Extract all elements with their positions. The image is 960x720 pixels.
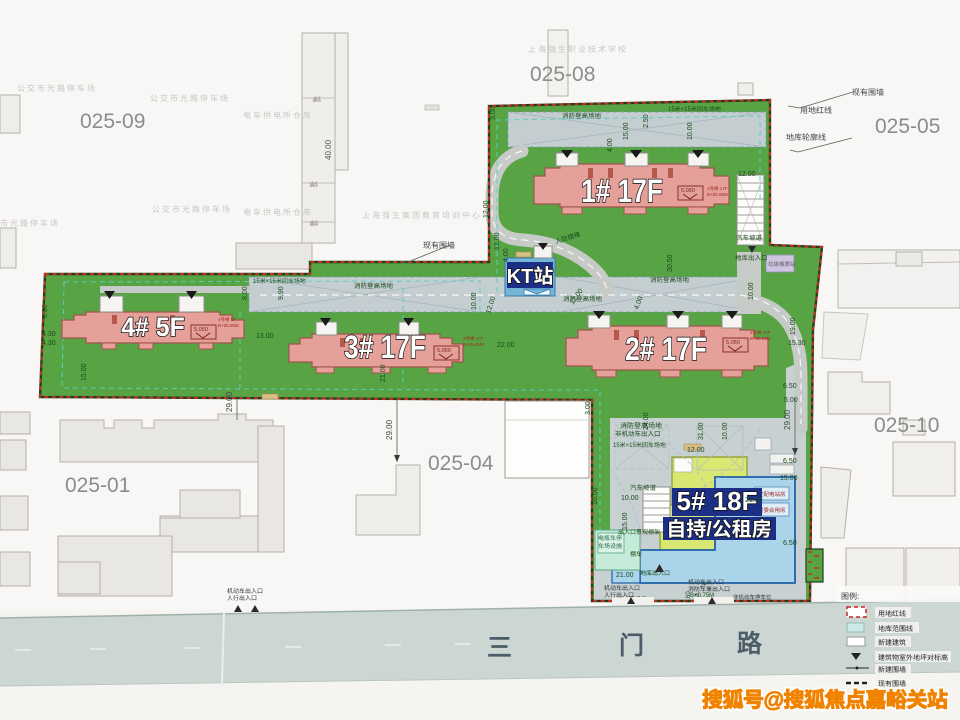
svg-text:4.00: 4.00 [503, 248, 510, 262]
svg-text:消防登高场地: 消防登高场地 [562, 112, 602, 120]
svg-text:21.00: 21.00 [616, 572, 634, 579]
svg-text:10.00: 10.00 [687, 122, 694, 140]
svg-text:2# 17F: 2# 17F [625, 333, 707, 368]
svg-text:2.50: 2.50 [643, 114, 650, 128]
svg-text:15米×15米回车场地: 15米×15米回车场地 [613, 441, 666, 449]
svg-text:电车供电所仓库: 电车供电所仓库 [243, 111, 313, 120]
svg-text:出入口景观棚架: 出入口景观棚架 [618, 528, 660, 536]
svg-text:现有围墙: 现有围墙 [878, 680, 906, 688]
svg-text:4号楼 5F: 4号楼 5F [218, 317, 236, 322]
svg-text:6.50: 6.50 [783, 540, 797, 547]
svg-text:地库轮廓线: 地库轮廓线 [786, 133, 826, 142]
svg-text:31.00: 31.00 [698, 422, 705, 440]
svg-text:KT站: KT站 [507, 266, 554, 288]
svg-text:025-10: 025-10 [874, 414, 939, 437]
svg-text:用地红线: 用地红线 [800, 106, 832, 115]
svg-text:消防车兼出入口: 消防车兼出入口 [688, 585, 730, 593]
svg-text:垃圾楼质站: 垃圾楼质站 [768, 261, 796, 268]
svg-text:10.00: 10.00 [621, 495, 639, 502]
svg-text:12.00: 12.00 [483, 200, 490, 218]
svg-text:15.00: 15.00 [623, 122, 630, 140]
svg-text:棚车: 棚车 [630, 550, 642, 558]
svg-text:9.90: 9.90 [278, 286, 285, 300]
svg-text:倉1: 倉1 [310, 181, 318, 188]
svg-text:1# 17F: 1# 17F [581, 175, 663, 210]
svg-text:2号楼 17F: 2号楼 17F [750, 330, 771, 335]
svg-text:15米×15米回车场地: 15米×15米回车场地 [668, 105, 721, 113]
svg-text:10.00: 10.00 [722, 422, 729, 440]
svg-text:居委会用房: 居委会用房 [758, 507, 786, 514]
svg-text:30.50: 30.50 [667, 254, 674, 272]
svg-text:3号楼 17F: 3号楼 17F [463, 336, 484, 341]
svg-text:倉1: 倉1 [313, 96, 321, 103]
svg-text:025-05: 025-05 [875, 115, 940, 138]
svg-text:5.050: 5.050 [194, 327, 208, 333]
svg-text:10.00: 10.00 [471, 292, 478, 310]
svg-text:29.00: 29.00 [385, 419, 394, 440]
svg-text:三: 三 [487, 634, 512, 662]
svg-text:汽车坡道: 汽车坡道 [630, 484, 657, 492]
svg-text:地库出入口: 地库出入口 [735, 254, 768, 262]
svg-text:22.00: 22.00 [497, 342, 515, 349]
svg-text:12.00: 12.00 [687, 447, 705, 454]
svg-text:15米×15米回车场地: 15米×15米回车场地 [253, 277, 306, 285]
svg-text:人行出入口: 人行出入口 [604, 591, 634, 599]
svg-text:4.30: 4.30 [42, 331, 56, 338]
svg-text:用地红线: 用地红线 [878, 610, 906, 618]
svg-text:市光路停车场: 市光路停车场 [0, 219, 60, 228]
svg-text:025-04: 025-04 [428, 452, 494, 475]
svg-text:5.050: 5.050 [726, 340, 740, 346]
svg-text:5.050: 5.050 [681, 188, 695, 194]
svg-text:15.30: 15.30 [788, 340, 806, 347]
svg-text:地库出入口: 地库出入口 [640, 569, 670, 577]
svg-text:40.00: 40.00 [324, 139, 333, 160]
svg-text:门: 门 [619, 632, 644, 660]
svg-text:8.20: 8.20 [42, 304, 49, 318]
svg-text:4# 5F: 4# 5F [121, 313, 185, 342]
svg-text:10.00: 10.00 [748, 282, 755, 300]
svg-text:1号楼 17F: 1号楼 17F [707, 186, 728, 191]
svg-text:19.00: 19.00 [790, 317, 797, 335]
svg-text:15.00: 15.00 [81, 363, 88, 381]
svg-text:消防登高场地: 消防登高场地 [354, 282, 394, 290]
svg-text:机动车出入口: 机动车出入口 [604, 584, 640, 592]
svg-text:29.00: 29.00 [225, 391, 234, 412]
svg-text:21.00: 21.00 [380, 364, 387, 382]
svg-text:3.00: 3.00 [585, 401, 592, 415]
svg-text:人行出入口: 人行出入口 [227, 594, 257, 602]
svg-text:倉2: 倉2 [310, 220, 318, 227]
svg-text:6.50: 6.50 [783, 383, 797, 390]
svg-text:B+05.05M: B+05.05M [750, 336, 771, 341]
svg-text:B+05.05M: B+05.05M [218, 323, 239, 328]
svg-text:新建围墙: 新建围墙 [878, 666, 906, 674]
svg-text:上海强生职业技术学校: 上海强生职业技术学校 [528, 45, 628, 54]
svg-text:025-08: 025-08 [530, 63, 595, 86]
svg-text:24.00: 24.00 [643, 412, 650, 430]
svg-text:公交市光路停车场: 公交市光路停车场 [17, 84, 97, 93]
svg-text:4.30: 4.30 [42, 340, 56, 347]
svg-text:公交市光路停车场: 公交市光路停车场 [152, 205, 232, 214]
svg-text:15.00: 15.00 [780, 475, 798, 482]
svg-text:非机动车出入口: 非机动车出入口 [615, 430, 661, 438]
svg-text:地库范围线: 地库范围线 [878, 625, 913, 633]
svg-text:汽车坡道: 汽车坡道 [736, 234, 763, 242]
svg-text:12.00: 12.00 [738, 171, 756, 178]
svg-text:搜狐号@搜狐焦点嘉峪关站: 搜狐号@搜狐焦点嘉峪关站 [702, 689, 948, 712]
svg-text:电车供电所仓库: 电车供电所仓库 [243, 208, 313, 217]
svg-text:4.00: 4.00 [607, 138, 614, 152]
svg-text:自持/公租房: 自持/公租房 [666, 518, 772, 541]
svg-text:3# 17F: 3# 17F [344, 331, 426, 366]
svg-text:非机动车停车位: 非机动车停车位 [733, 594, 772, 601]
svg-text:15.00: 15.00 [622, 512, 629, 530]
svg-text:3.00: 3.00 [490, 106, 497, 120]
svg-text:29.00: 29.00 [783, 409, 792, 430]
svg-text:车场设施: 车场设施 [598, 542, 622, 550]
svg-text:8.00: 8.00 [242, 286, 249, 300]
svg-text:公交市光路停车场: 公交市光路停车场 [150, 94, 230, 103]
svg-text:机动车出入口: 机动车出入口 [227, 587, 263, 595]
svg-text:现有围墙: 现有围墙 [423, 241, 455, 250]
svg-text:上海强生集团教育培训中心: 上海强生集团教育培训中心 [362, 211, 482, 220]
svg-text:025-01: 025-01 [65, 474, 130, 497]
svg-text:建筑物室外地坪对标高: 建筑物室外地坪对标高 [878, 654, 948, 662]
svg-text:路: 路 [737, 630, 763, 658]
svg-text:21.00: 21.00 [745, 497, 763, 504]
svg-text:6.50: 6.50 [783, 458, 797, 465]
svg-text:5.00: 5.00 [784, 397, 798, 404]
svg-text:消防登高场地: 消防登高场地 [620, 422, 662, 430]
svg-text:13.00: 13.00 [256, 333, 274, 340]
svg-text:新建建筑: 新建建筑 [878, 639, 906, 647]
svg-text:5.050: 5.050 [437, 348, 451, 354]
svg-text:10.00: 10.00 [592, 487, 599, 505]
svg-text:13.00: 13.00 [494, 232, 501, 250]
svg-text:消防登高场地: 消防登高场地 [650, 276, 690, 284]
svg-text:机动车出入口: 机动车出入口 [688, 578, 724, 586]
svg-text:B+05.05M: B+05.05M [707, 192, 728, 197]
svg-text:现有围墙: 现有围墙 [852, 88, 884, 97]
svg-text:B+05.05M: B+05.05M [463, 342, 484, 347]
svg-text:图例:: 图例: [841, 592, 859, 601]
svg-text:025-09: 025-09 [80, 110, 145, 133]
